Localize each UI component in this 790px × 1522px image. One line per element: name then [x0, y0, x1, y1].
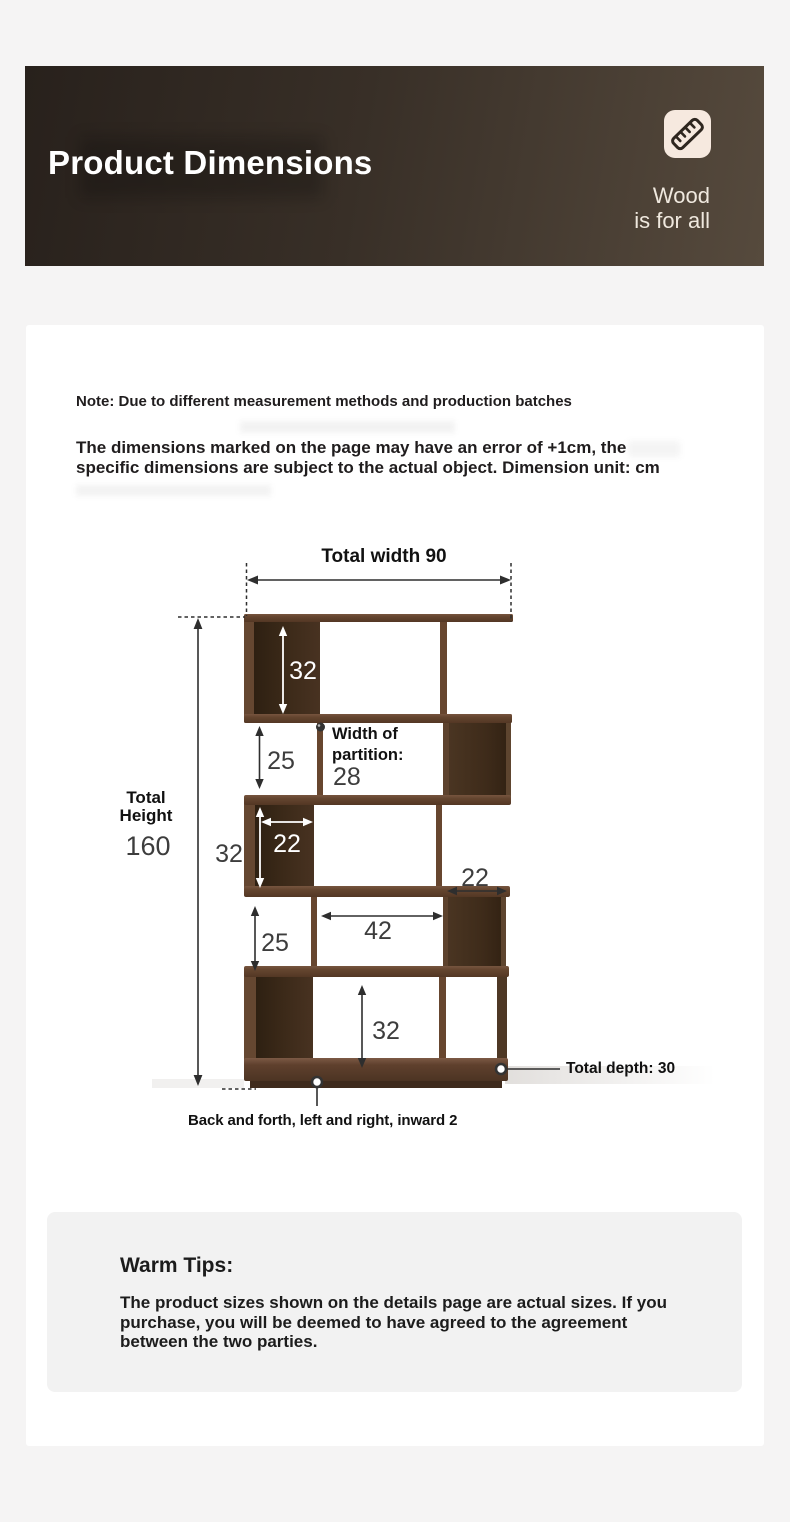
svg-text:Back and forth, left and right: Back and forth, left and right, inward 2 — [188, 1112, 457, 1129]
svg-text:25: 25 — [261, 929, 289, 957]
svg-text:Height: Height — [120, 806, 173, 825]
svg-text:22: 22 — [273, 830, 301, 858]
svg-text:22: 22 — [461, 864, 489, 892]
svg-text:Width of: Width of — [332, 725, 398, 743]
svg-text:Total width 90: Total width 90 — [321, 546, 446, 567]
svg-text:28: 28 — [333, 763, 361, 791]
svg-text:32: 32 — [289, 657, 317, 685]
svg-text:Total depth: 30: Total depth: 30 — [566, 1060, 675, 1077]
svg-text:32: 32 — [372, 1017, 400, 1045]
svg-text:160: 160 — [125, 831, 170, 861]
svg-text:partition:: partition: — [332, 746, 404, 764]
svg-text:Total: Total — [126, 788, 165, 807]
svg-text:25: 25 — [267, 747, 295, 775]
svg-text:42: 42 — [364, 917, 392, 945]
svg-text:32: 32 — [215, 840, 243, 868]
